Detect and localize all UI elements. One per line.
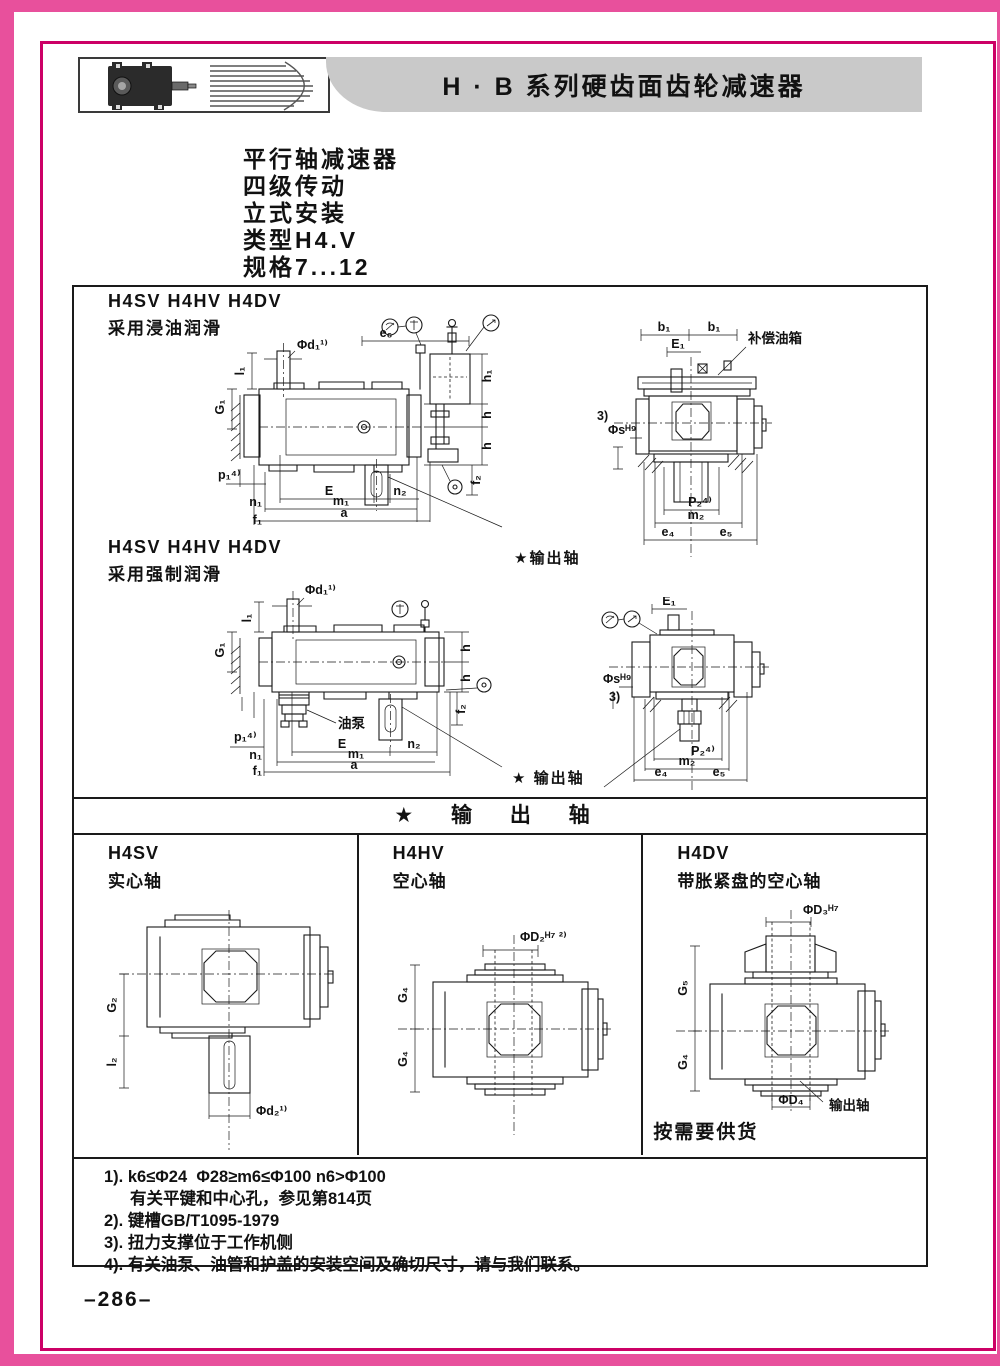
phi-s-dim: 3) Φsᴴ⁹ bbox=[597, 409, 642, 469]
svg-text:ΦD₃ᴴ⁷: ΦD₃ᴴ⁷ bbox=[803, 903, 839, 917]
dims-left: G₄ G₄ bbox=[396, 965, 420, 1092]
svg-text:e₆: e₆ bbox=[380, 326, 393, 340]
intro-line: 平行轴减速器 bbox=[243, 146, 399, 173]
footnotes: 1). k6≤Φ24 Φ28≥m6≤Φ100 n6>Φ100 有关平键和中心孔，… bbox=[74, 1157, 926, 1267]
column-h4dv-model: H4DV bbox=[677, 843, 926, 864]
svg-text:h: h bbox=[480, 411, 494, 419]
housing-outline bbox=[244, 382, 421, 472]
dim-b1-E1: b₁ b₁ E₁ bbox=[641, 320, 737, 357]
tank-callout-label: 补偿油箱 bbox=[747, 330, 802, 346]
bottom-dims: p₁⁴⁾ E n₂ m₁ a n₁ f₁ bbox=[230, 692, 450, 778]
gearbox-illustration bbox=[108, 62, 196, 110]
intro-line: 规格7...12 bbox=[243, 254, 399, 281]
page-border-bottom bbox=[0, 1354, 1000, 1366]
intro-line: 立式安装 bbox=[243, 200, 399, 227]
footnote-4: 4). 有关油泵、油管和护盖的安装空间及确切尺寸，请与我们联系。 bbox=[104, 1255, 906, 1276]
right-dims: h h f₂ bbox=[444, 632, 491, 725]
section-forced-models: H4SV H4HV H4DV bbox=[108, 537, 282, 558]
svg-text:G₁: G₁ bbox=[213, 643, 227, 658]
shrink-disk bbox=[745, 936, 837, 984]
page-border-left bbox=[0, 0, 14, 1366]
drawing-immersion-side-view: e₆ Φd₁¹⁾ l₁ G₁ bbox=[204, 309, 504, 529]
svg-text:G₅: G₅ bbox=[676, 980, 690, 996]
drawing-forced-front-view: E₁ Φsᴴ⁹ 3) bbox=[599, 597, 879, 797]
svg-text:e₅: e₅ bbox=[720, 525, 733, 539]
svg-text:n₂: n₂ bbox=[393, 484, 406, 498]
drawing-h4hv-hollow-shaft: ΦD₂ᴴ⁷ ²⁾ bbox=[373, 895, 623, 1145]
svg-text:b₁: b₁ bbox=[708, 320, 721, 334]
page-title: H · B 系列硬齿面齿轮减速器 bbox=[442, 67, 805, 103]
svg-text:b₁: b₁ bbox=[658, 320, 671, 334]
drawing-h4sv-solid-shaft: G₂ l₂ Φd₂¹⁾ bbox=[90, 905, 340, 1155]
svg-text:Φsᴴ⁹: Φsᴴ⁹ bbox=[603, 672, 632, 686]
tank-leader bbox=[718, 347, 746, 375]
drawing-box: H4SV H4HV H4DV 采用浸油润滑 e₆ Φd₁¹⁾ l₁ G₁ bbox=[72, 285, 928, 1267]
oil-tank bbox=[428, 320, 470, 495]
svg-text:Φd₂¹⁾: Φd₂¹⁾ bbox=[256, 1104, 287, 1118]
svg-text:Φd₁¹⁾: Φd₁¹⁾ bbox=[297, 338, 328, 352]
svg-text:m₂: m₂ bbox=[688, 508, 705, 522]
svg-text:n₁: n₁ bbox=[249, 495, 262, 509]
svg-text:G₄: G₄ bbox=[396, 987, 410, 1003]
column-h4sv-model: H4SV bbox=[108, 843, 357, 864]
dim-e6: e₆ bbox=[362, 326, 469, 346]
svg-text:l₁: l₁ bbox=[240, 614, 254, 623]
dims-top: ΦD₂ᴴ⁷ ²⁾ bbox=[483, 930, 567, 957]
svg-text:Φsᴴ⁹: Φsᴴ⁹ bbox=[608, 423, 637, 437]
right-dims: h₁ h h f₂ bbox=[424, 354, 494, 495]
svg-text:p₁⁴⁾: p₁⁴⁾ bbox=[234, 730, 257, 744]
svg-text:P₂⁴⁾: P₂⁴⁾ bbox=[688, 495, 712, 509]
output-shaft-columns: H4SV 实心轴 bbox=[74, 835, 926, 1155]
footnote-1b: 有关平键和中心孔，参见第814页 bbox=[104, 1189, 906, 1210]
drawing-immersion-front-view: b₁ b₁ E₁ 补偿油箱 3) Φsᴴ⁹ bbox=[596, 307, 876, 572]
svg-text:h₁: h₁ bbox=[480, 370, 494, 383]
column-h4sv-desc: 实心轴 bbox=[108, 867, 357, 892]
svg-text:E₁: E₁ bbox=[671, 337, 685, 351]
bottom-dims: P₂⁴⁾ m₂ e₄ e₅ bbox=[644, 454, 757, 545]
intro-line: 四级传动 bbox=[243, 173, 399, 200]
svg-text:m₂: m₂ bbox=[679, 754, 696, 768]
housing bbox=[120, 910, 335, 1150]
solid-shaft bbox=[209, 1036, 250, 1093]
svg-text:e₅: e₅ bbox=[713, 765, 726, 779]
svg-text:l₁: l₁ bbox=[233, 367, 247, 376]
svg-text:l₂: l₂ bbox=[105, 1057, 119, 1066]
column-h4sv: H4SV 实心轴 bbox=[74, 835, 359, 1155]
wall-hatching bbox=[231, 638, 240, 694]
bottom-dims: p₁⁴⁾ E n₂ m₁ a n₁ f₁ bbox=[218, 455, 430, 527]
svg-text:f₂: f₂ bbox=[469, 475, 483, 485]
dim-E1: E₁ bbox=[652, 597, 687, 614]
page-border-top bbox=[0, 0, 1000, 12]
housing bbox=[398, 935, 613, 1135]
footnote-3: 3). 扭力支撑位于工作机侧 bbox=[104, 1233, 906, 1254]
dims-top: ΦD₃ᴴ⁷ bbox=[766, 903, 839, 927]
dims: G₂ l₂ Φd₂¹⁾ bbox=[105, 974, 287, 1119]
housing bbox=[676, 910, 891, 1112]
title-bar: H · B 系列硬齿面齿轮减速器 bbox=[326, 57, 922, 112]
svg-text:e₄: e₄ bbox=[655, 765, 668, 779]
output-shaft-note-1: ★输出轴 bbox=[514, 547, 580, 568]
output-shaft-divider: ★ 输 出 轴 bbox=[74, 797, 926, 835]
svg-text:ΦD₂ᴴ⁷ ²⁾: ΦD₂ᴴ⁷ ²⁾ bbox=[520, 930, 567, 944]
supply-note: 按需要供货 bbox=[653, 1117, 758, 1144]
svg-text:h: h bbox=[459, 644, 473, 652]
svg-text:p₁⁴⁾: p₁⁴⁾ bbox=[218, 468, 241, 482]
output-shaft bbox=[379, 694, 402, 747]
svg-text:n₁: n₁ bbox=[249, 748, 262, 762]
page-number: –286– bbox=[84, 1288, 152, 1312]
column-h4dv-desc: 带胀紧盘的空心轴 bbox=[677, 867, 926, 892]
svg-text:G₁: G₁ bbox=[213, 400, 227, 415]
wall-hatching bbox=[231, 395, 240, 461]
column-h4hv-model: H4HV bbox=[393, 843, 642, 864]
svg-text:E: E bbox=[338, 737, 346, 751]
input-shaft: Φd₁¹⁾ bbox=[272, 583, 336, 639]
pump-leader bbox=[307, 710, 336, 723]
column-h4dv: H4DV 带胀紧盘的空心轴 ΦD₃ᴴ⁷ bbox=[643, 835, 926, 1155]
svg-text:3): 3) bbox=[597, 409, 608, 423]
svg-text:G₄: G₄ bbox=[676, 1054, 690, 1070]
output-shaft bbox=[365, 459, 388, 511]
dim-l1-G1: l₁ G₁ bbox=[213, 602, 264, 672]
svg-text:h: h bbox=[480, 442, 494, 450]
output-shaft-leader bbox=[604, 729, 680, 787]
footnote-1: 1). k6≤Φ24 Φ28≥m6≤Φ100 n6>Φ100 bbox=[104, 1167, 906, 1188]
svg-text:n₂: n₂ bbox=[407, 737, 420, 751]
output-shaft-note-2: ★ 输出轴 bbox=[512, 767, 585, 788]
logo-box bbox=[78, 57, 330, 113]
svg-text:ΦD₄: ΦD₄ bbox=[779, 1093, 804, 1107]
dims-bottom: ΦD₄ 输出轴 bbox=[772, 1081, 870, 1113]
drawing-forced-side-view: Φd₁¹⁾ l₁ G₁ bbox=[204, 582, 504, 794]
oil-pump bbox=[279, 695, 309, 727]
svg-text:3): 3) bbox=[609, 690, 620, 704]
output-shaft-callout: 输出轴 bbox=[829, 1097, 870, 1113]
footnote-2: 2). 键槽GB/T1095-1979 bbox=[104, 1211, 906, 1232]
output-shaft-leader bbox=[388, 477, 502, 527]
svg-text:G₂: G₂ bbox=[105, 997, 119, 1012]
svg-text:e₄: e₄ bbox=[662, 525, 675, 539]
callout-icons bbox=[602, 611, 657, 634]
svg-text:G₄: G₄ bbox=[396, 1051, 410, 1067]
svg-text:f₂: f₂ bbox=[454, 704, 468, 714]
column-h4hv-desc: 空心轴 bbox=[393, 867, 642, 892]
pump-callout-label: 油泵 bbox=[338, 715, 365, 731]
svg-text:f₁: f₁ bbox=[253, 764, 262, 778]
gear-reducer-logo-icon bbox=[80, 59, 328, 111]
svg-text:h: h bbox=[459, 674, 473, 682]
svg-text:E₁: E₁ bbox=[662, 597, 676, 608]
tank-top bbox=[638, 361, 756, 396]
svg-text:f₁: f₁ bbox=[253, 513, 262, 527]
svg-text:Φd₁¹⁾: Φd₁¹⁾ bbox=[305, 583, 336, 597]
housing-outline bbox=[259, 625, 444, 699]
svg-text:a: a bbox=[351, 758, 359, 772]
column-h4hv: H4HV 空心轴 ΦD₂ᴴ⁷ ²⁾ bbox=[359, 835, 644, 1155]
drawing-h4dv-shrink-disk: ΦD₃ᴴ⁷ bbox=[651, 890, 921, 1115]
intro-block: 平行轴减速器 四级传动 立式安装 类型H4.V 规格7...12 bbox=[243, 146, 399, 281]
phi-s-dim: Φsᴴ⁹ 3) bbox=[603, 672, 633, 709]
bottom-dims: P₂⁴⁾ m₂ e₄ e₅ bbox=[634, 692, 747, 782]
dims-left: G₅ G₄ bbox=[676, 946, 700, 1091]
intro-line: 类型H4.V bbox=[243, 227, 399, 254]
svg-text:a: a bbox=[341, 506, 349, 520]
